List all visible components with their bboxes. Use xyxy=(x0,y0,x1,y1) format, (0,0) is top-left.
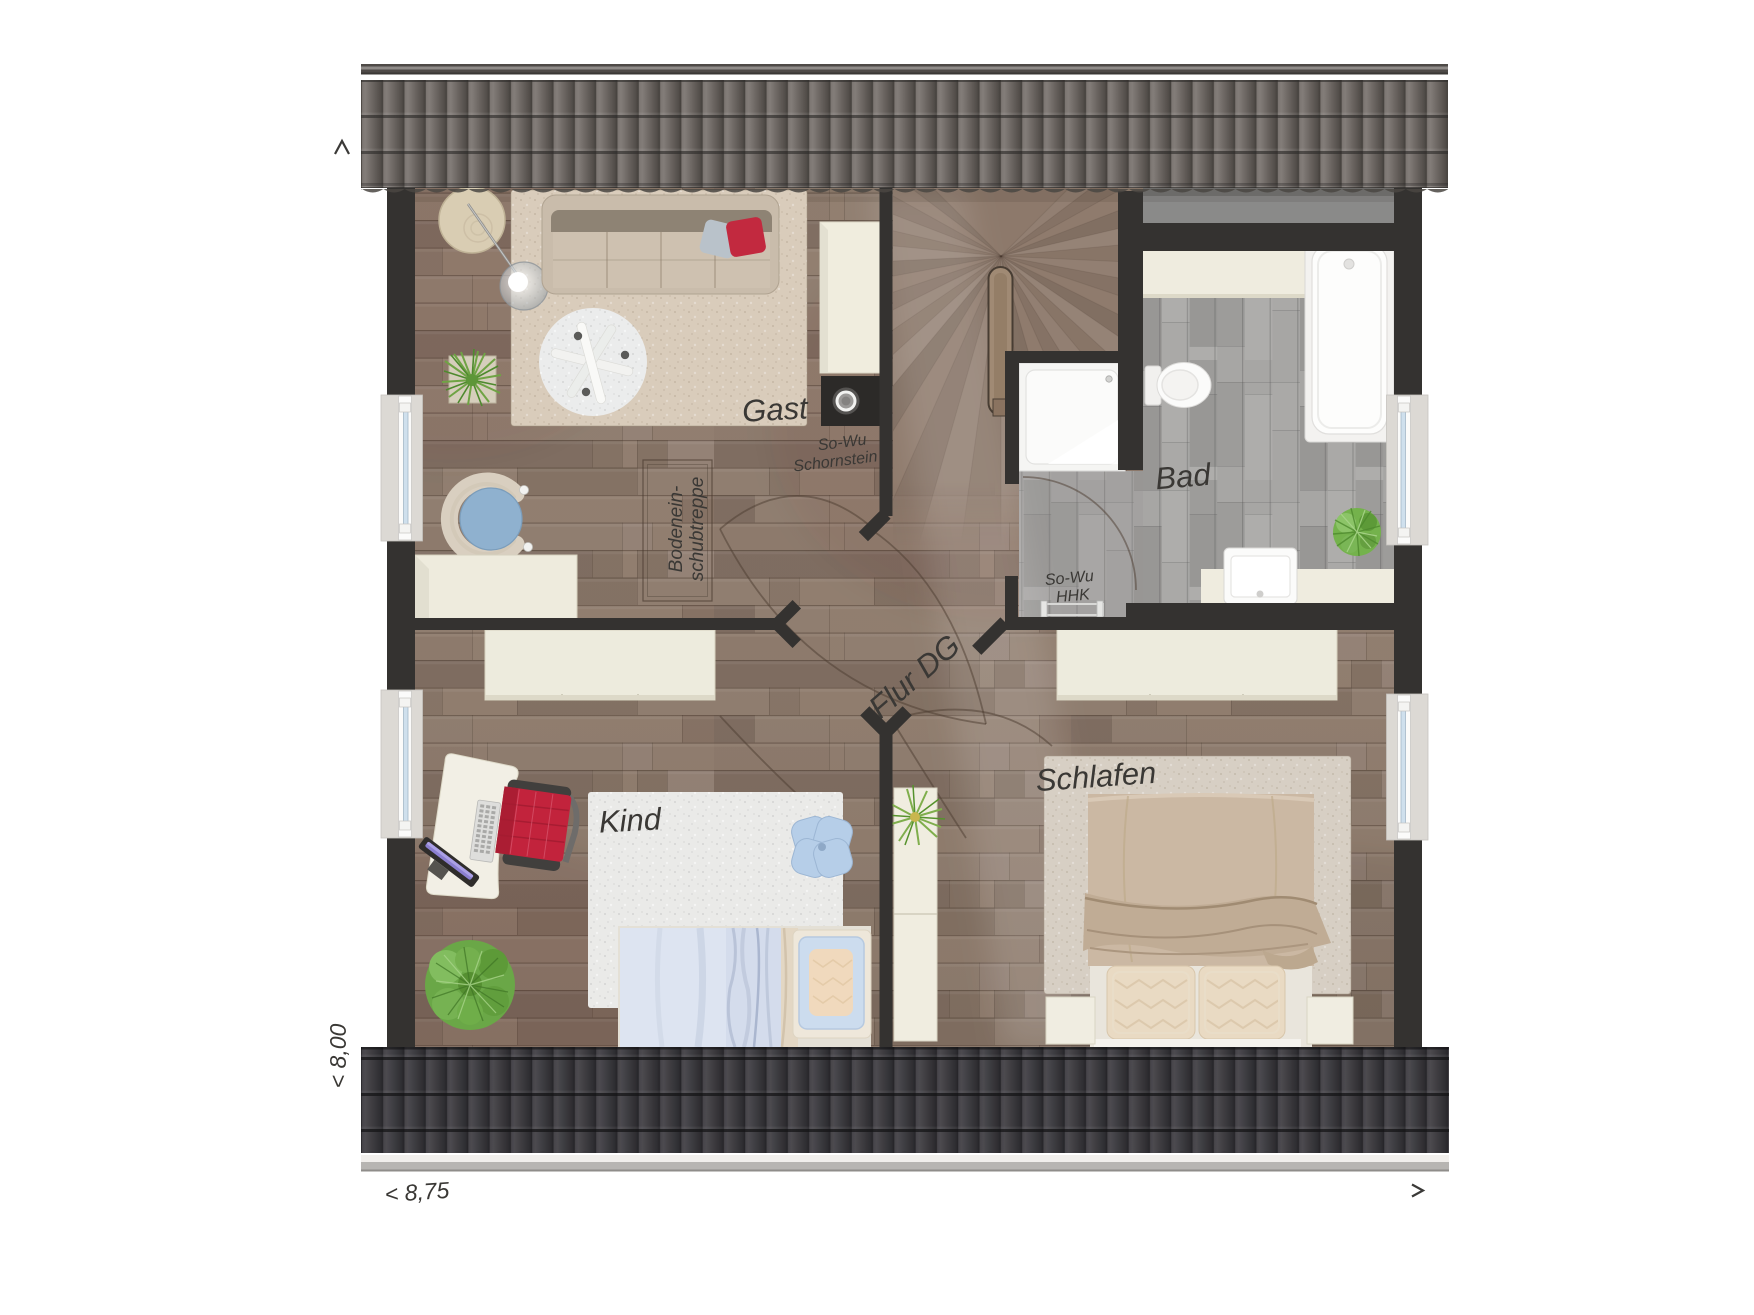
svg-text:Kind: Kind xyxy=(598,801,664,839)
svg-text:Bad: Bad xyxy=(1154,457,1214,497)
svg-text:Gast: Gast xyxy=(741,390,810,428)
svg-text:Bodenein-: Bodenein- xyxy=(666,486,687,573)
svg-text:HHK: HHK xyxy=(1055,586,1091,606)
svg-text:schubtreppe: schubtreppe xyxy=(687,477,708,582)
svg-text:< 8,00: < 8,00 xyxy=(325,1024,351,1089)
svg-text:< 8,75: < 8,75 xyxy=(384,1177,450,1207)
